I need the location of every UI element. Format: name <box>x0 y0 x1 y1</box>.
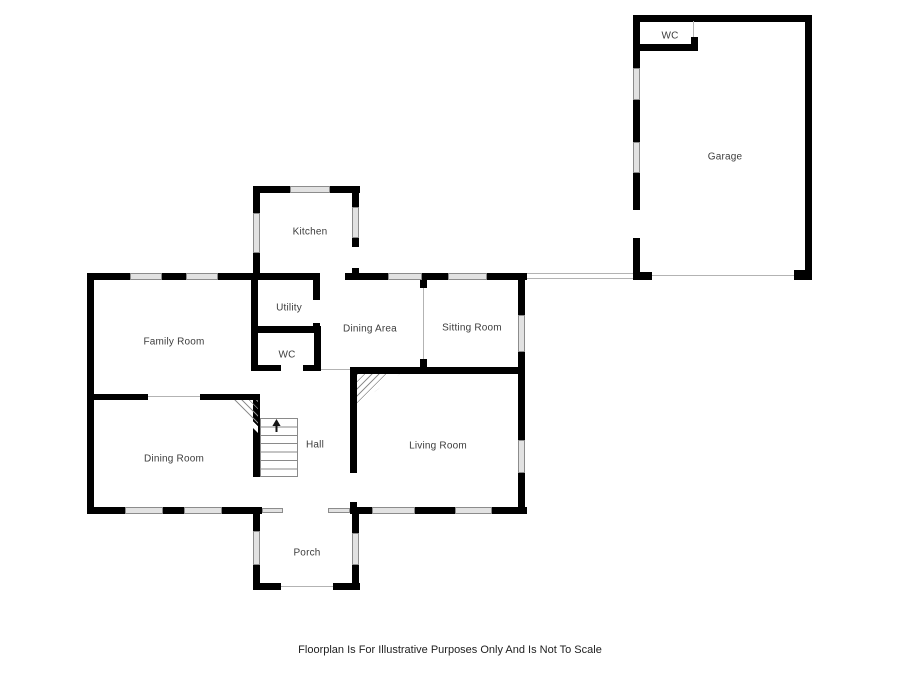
room-label-dining-area: Dining Area <box>343 324 397 335</box>
room-label-family-room: Family Room <box>143 337 204 348</box>
stairs-hatch-left <box>225 400 258 433</box>
floorplan: WC Garage Kitchen Utility Dining Area Si… <box>0 0 900 675</box>
window-garage-left-1 <box>633 68 640 100</box>
room-label-kitchen: Kitchen <box>293 227 328 238</box>
wall-garage-right <box>805 15 812 280</box>
wall-kitchen-left <box>253 253 260 273</box>
window-garage-left-2 <box>633 142 640 173</box>
wall-porch-left <box>253 514 260 531</box>
garage-wc-door-line <box>693 21 694 37</box>
wall-porch-bottom <box>253 583 281 590</box>
wall-house-top <box>345 273 388 280</box>
wall-garage-bottom-left <box>633 272 652 280</box>
window-living-bottom-2 <box>455 507 492 514</box>
window-living-bottom-1 <box>372 507 415 514</box>
wall-house-right <box>518 352 525 440</box>
wall-family-dining-divider <box>200 394 257 400</box>
wall-wc-bottom <box>303 365 321 371</box>
window-porch-right <box>352 533 359 565</box>
wall-porch-bottom <box>333 583 360 590</box>
wall-kitchen-right <box>352 193 359 207</box>
wall-kitchen-top <box>330 186 360 193</box>
room-label-living-room: Living Room <box>409 441 467 452</box>
wall-house-bottom <box>163 507 184 514</box>
window-dining-area-top <box>388 273 422 280</box>
connector-line-top <box>525 273 633 274</box>
window-porch-sidelight-right <box>328 508 350 513</box>
wall-house-bottom <box>492 507 527 514</box>
opening-dining-sitting <box>423 288 424 360</box>
opening-hall-dining-area <box>321 369 351 370</box>
wall-garage-bottom-right <box>794 270 812 280</box>
window-family-top-1 <box>130 273 162 280</box>
wall-utility-right <box>313 280 320 300</box>
room-label-sitting-room: Sitting Room <box>442 323 502 334</box>
room-label-hall: Hall <box>306 440 324 451</box>
wall-kitchen-top <box>253 186 290 193</box>
connector-line-bottom <box>525 278 633 279</box>
wall-kitchen-right <box>352 238 359 247</box>
garage-door-line <box>652 275 794 276</box>
wall-house-top <box>162 273 186 280</box>
opening-family-dining <box>148 396 200 397</box>
wall-dining-sitting-stub-top <box>420 280 427 288</box>
window-porch-left <box>253 531 260 565</box>
wall-house-bottom <box>415 507 455 514</box>
wall-living-top <box>350 367 525 374</box>
window-dining-room-bottom-1 <box>125 507 163 514</box>
wall-living-left <box>350 374 357 473</box>
wall-house-bottom <box>350 507 372 514</box>
stairs-up-arrow-icon <box>272 419 281 432</box>
window-kitchen-right <box>352 207 359 238</box>
window-porch-sidelight-left <box>262 508 283 513</box>
wall-wc-bottom <box>251 365 281 371</box>
window-sitting-top <box>448 273 487 280</box>
window-family-top-2 <box>186 273 218 280</box>
wall-garage-top <box>633 15 812 22</box>
wall-house-top <box>487 273 527 280</box>
window-kitchen-top <box>290 186 330 193</box>
wall-kitchen-left <box>253 193 260 213</box>
wall-house-top <box>218 273 320 280</box>
wall-kitchen-right <box>352 268 359 273</box>
wall-garage-left <box>633 238 640 272</box>
window-living-right <box>518 440 525 473</box>
room-label-wc: WC <box>278 350 295 361</box>
room-label-dining-room: Dining Room <box>144 454 204 465</box>
room-label-utility: Utility <box>276 303 302 314</box>
window-dining-room-bottom-2 <box>184 507 222 514</box>
wall-garage-left <box>633 100 640 142</box>
window-sitting-right <box>518 315 525 352</box>
wall-utility-wc-divider <box>251 326 321 333</box>
wall-family-dining-divider <box>87 394 148 400</box>
stairs-hatch-right <box>357 374 400 404</box>
room-label-garage-wc: WC <box>661 31 678 42</box>
caption: Floorplan Is For Illustrative Purposes O… <box>298 644 602 656</box>
porch-entry-line <box>281 586 333 587</box>
wall-dining-sitting-stub-bottom <box>420 359 427 367</box>
wall-house-bottom <box>222 507 262 514</box>
wall-house-top <box>422 273 448 280</box>
wall-house-bottom <box>87 507 125 514</box>
room-label-garage: Garage <box>708 152 743 163</box>
wall-house-right <box>518 280 525 315</box>
wall-garage-left <box>633 173 640 210</box>
wall-porch-right <box>352 514 359 533</box>
wall-garage-wc-bottom <box>633 44 697 51</box>
window-kitchen-left <box>253 213 260 253</box>
room-label-porch: Porch <box>293 548 320 559</box>
wall-garage-wc-right <box>691 37 698 51</box>
